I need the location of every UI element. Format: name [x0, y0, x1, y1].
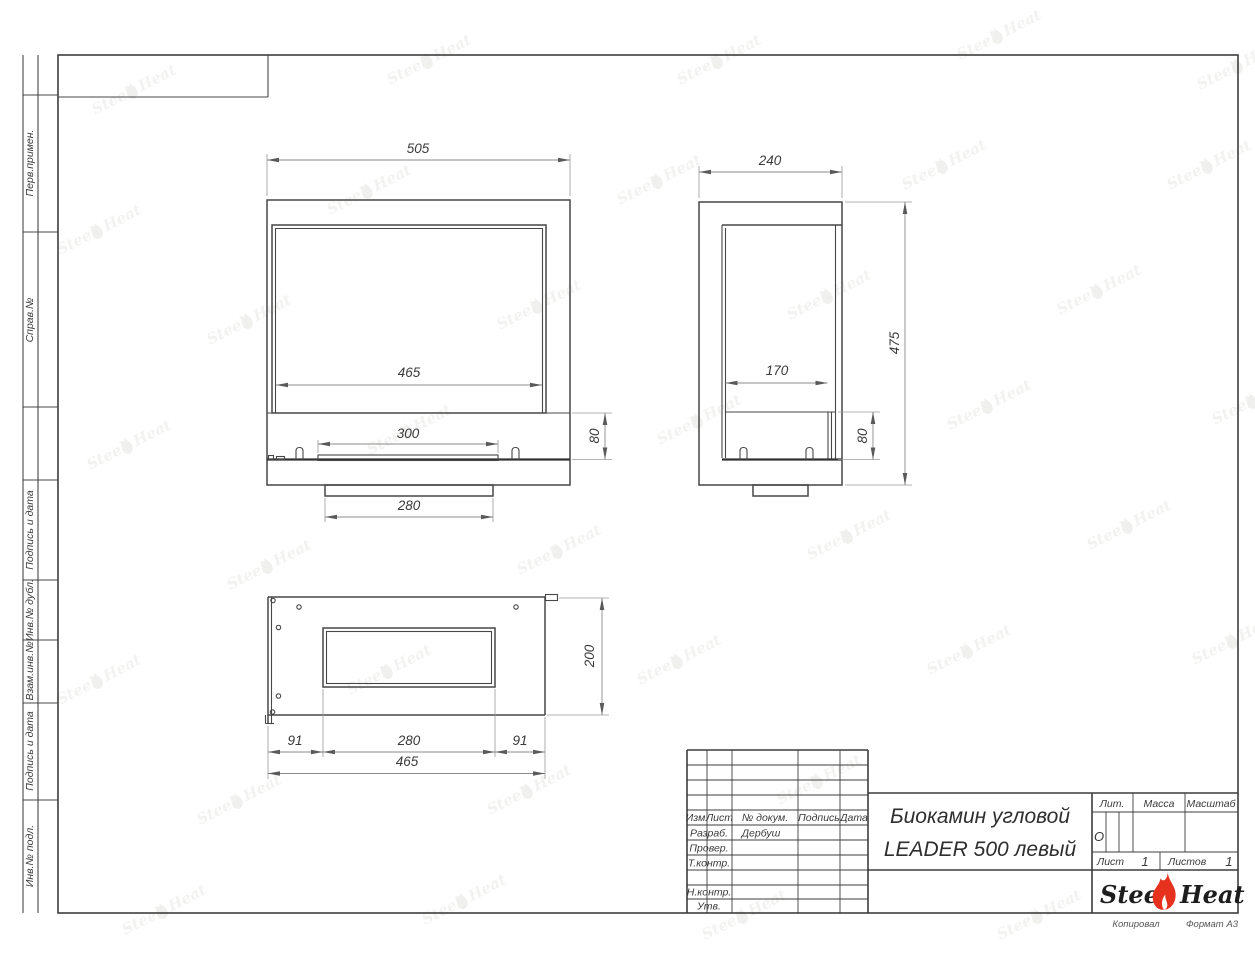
drawing-sheet: Steel Heat: [0, 0, 1255, 970]
watermark-layer: [54, 6, 1255, 944]
scale-label: Масштаб: [1186, 798, 1236, 810]
mounting-hole: [514, 605, 518, 609]
dim-plan-opening-width: 280: [397, 733, 421, 748]
footer-format-note: Формат А3: [1186, 919, 1239, 930]
margin-label-podpis-data-1: Подпись и дата: [24, 490, 36, 570]
dim-front-glass-width: 465: [398, 365, 421, 380]
row-prover: Провер.: [689, 843, 728, 855]
col-izm: Изм.: [686, 812, 708, 824]
dim-plan-depth: 200: [582, 644, 597, 668]
row-utv: Утв.: [696, 901, 721, 913]
dim-front-width: 505: [407, 141, 430, 156]
technical-drawing: Steel Heat: [0, 0, 1255, 970]
burner-clip: [806, 448, 813, 460]
sheet-label: Лист: [1096, 856, 1124, 868]
side-view-dimensions: 240 170 80 475: [699, 153, 912, 485]
dim-plan-width: 465: [396, 754, 419, 769]
sheet-value: 1: [1141, 854, 1148, 869]
dim-front-pedestal-width: 280: [397, 498, 421, 513]
lit-label: Лит.: [1099, 798, 1125, 810]
side-view: [699, 202, 842, 496]
dim-side-glass-depth: 170: [766, 363, 789, 378]
document-title-line2: LEADER 500 левый: [884, 838, 1077, 861]
dim-plan-margin-right: 91: [512, 733, 527, 748]
mounting-hole: [276, 694, 280, 698]
margin-label-sprav-no: Справ.№: [24, 298, 36, 343]
dim-side-depth: 240: [758, 153, 782, 168]
col-doc: № докум.: [742, 812, 788, 824]
burner-clip: [296, 448, 303, 460]
mounting-hole: [297, 605, 301, 609]
margin-label-inv-dubl: Инв.№ дубл.: [24, 579, 36, 641]
dim-front-burner-width: 300: [397, 426, 420, 441]
col-sign: Подпись: [798, 812, 840, 824]
lit-value: О: [1094, 829, 1104, 844]
dim-side-height: 475: [887, 331, 902, 354]
front-view-dimensions: 505 465 300 80 280: [267, 141, 612, 522]
sheets-value: 1: [1225, 854, 1232, 869]
dim-side-base-height: 80: [855, 428, 870, 444]
sheets-label: Листов: [1167, 856, 1207, 868]
dim-plan-margin-left: 91: [287, 733, 302, 748]
row-tkontr: Т.контр.: [688, 858, 730, 870]
steel-heat-logo: Steel Heat: [1100, 872, 1245, 910]
dim-front-base-height: 80: [587, 428, 602, 444]
document-title-line1: Биокамин угловой: [890, 805, 1070, 828]
footer-copy-note: Копировал: [1112, 919, 1160, 930]
margin-label-podpis-data-2: Подпись и дата: [24, 711, 36, 791]
row-razrab-value: Дербуш: [741, 828, 781, 840]
margin-label-perv-primen: Перв.примен.: [24, 130, 36, 197]
burner-clip: [512, 448, 519, 460]
front-view: [267, 200, 570, 496]
col-date: Дата: [839, 812, 868, 824]
margin-label-inv-podl: Инв.№ подл.: [24, 825, 36, 887]
mass-label: Масса: [1143, 798, 1174, 810]
burner-clip: [740, 448, 747, 460]
mounting-hole: [276, 625, 280, 629]
row-nkontr: Н.контр.: [687, 887, 731, 899]
row-razrab: Разраб.: [690, 828, 728, 840]
logo-heat-text: Heat: [1179, 880, 1245, 909]
plan-view-dimensions: 200 91 280 91 465: [268, 598, 609, 779]
margin-label-vzam-inv: Взам.инв.№: [24, 641, 36, 700]
col-list: Лист: [705, 812, 733, 824]
